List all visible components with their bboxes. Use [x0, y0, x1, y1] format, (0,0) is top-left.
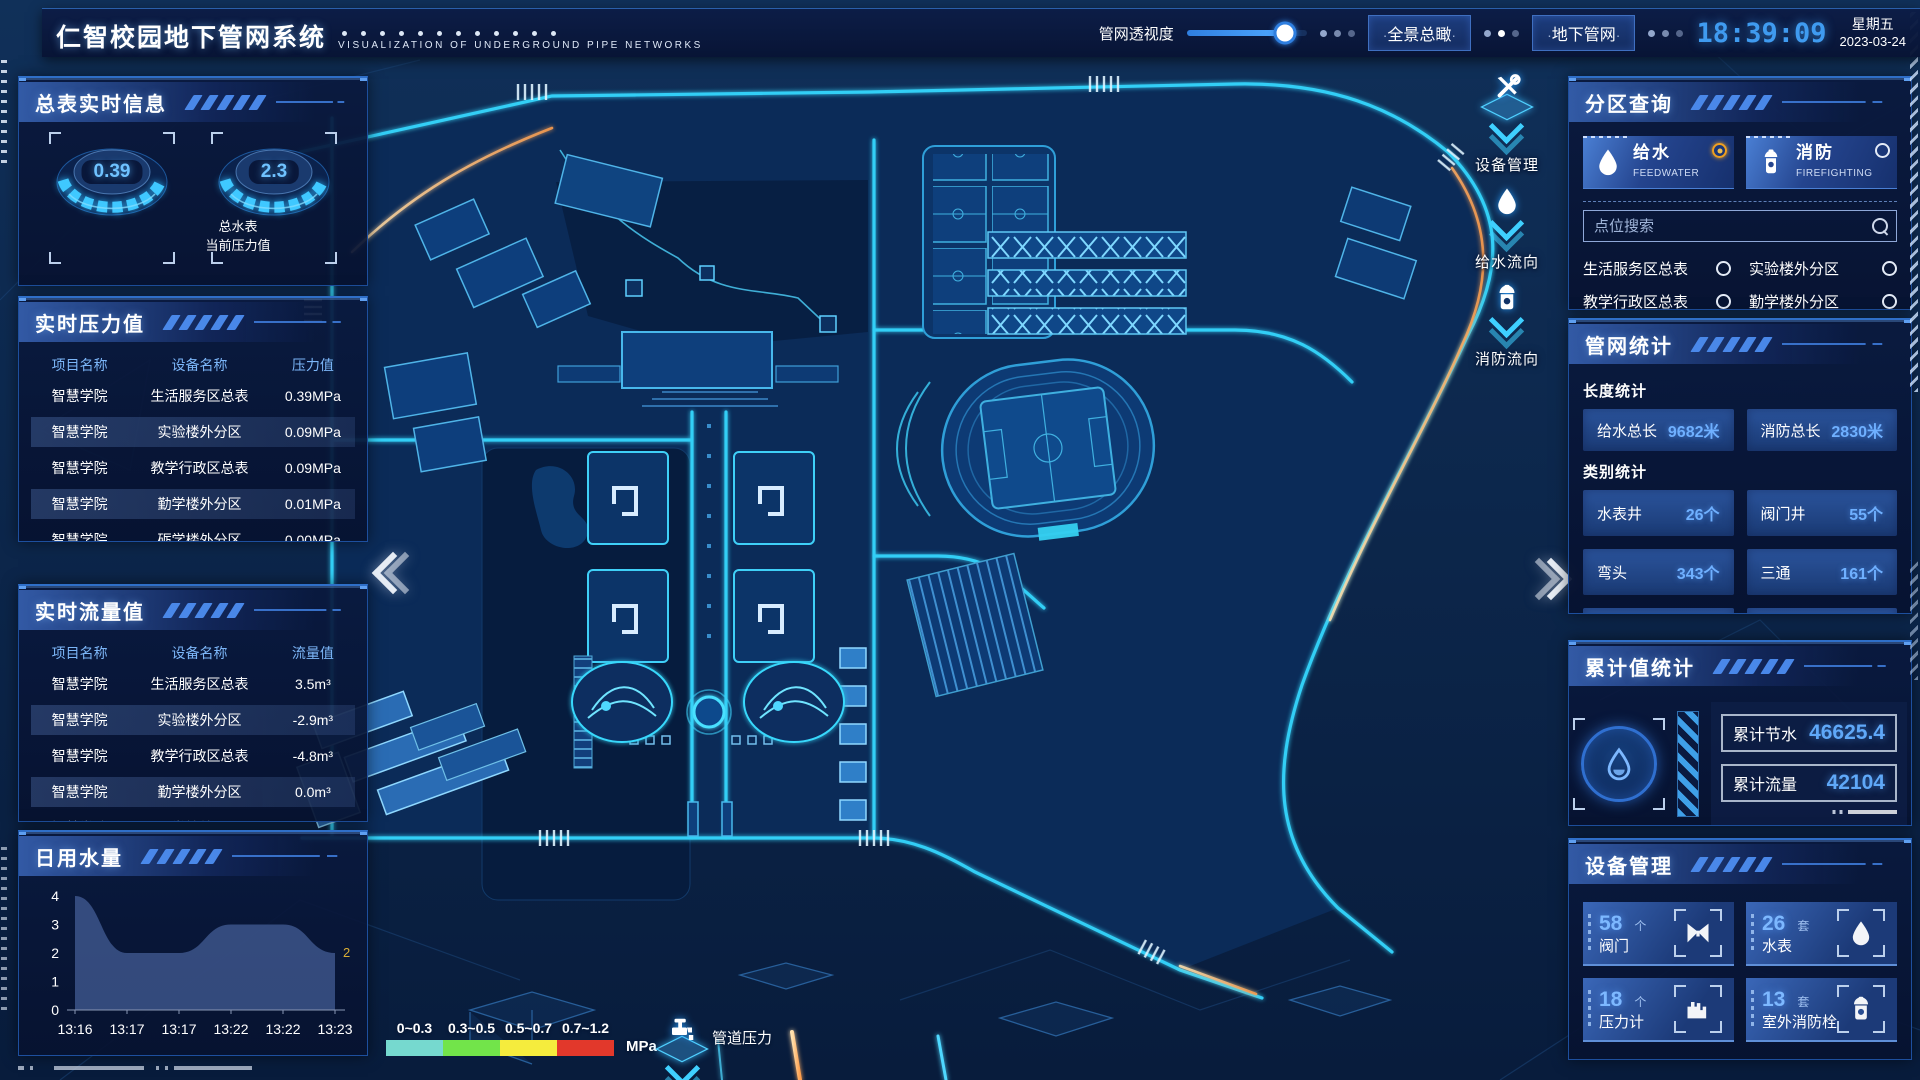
water-saving-icon-box: [1573, 718, 1665, 810]
panel-master-meter: 总表实时信息 0.39 总水表 当前压力值 2.3 总水表 瞬时流量: [18, 76, 368, 286]
stat-label: 水表井: [1597, 503, 1642, 524]
pipe-transparency-slider[interactable]: [1187, 30, 1307, 36]
stat-value: 9682米: [1668, 418, 1720, 442]
map-pan-left-arrow[interactable]: [376, 548, 416, 596]
svg-text:4: 4: [51, 888, 59, 904]
daily-water-area-chart: 0123413:1613:1713:1713:2213:2213:232: [31, 882, 357, 1050]
zone-item-label: 教学行政区总表: [1583, 291, 1688, 310]
device-card: 58个阀门: [1583, 902, 1734, 966]
panel-network-stats: 管网统计 长度统计 给水总长9682米消防总长2830米 类别统计 水表井26个…: [1568, 318, 1912, 614]
map-float-buttons: 设备管理 给水流向 消防流向: [1468, 66, 1546, 373]
hydrant-icon: [1756, 147, 1786, 177]
cumulative-values: 累计节水46625.4累计流量42104: [1711, 702, 1907, 826]
table-row: 智慧学院实验楼外分区0.09MPa: [31, 417, 355, 447]
table-header: 项目名称 设备名称 压力值: [31, 348, 355, 381]
stat-label: 消防总长: [1761, 420, 1821, 441]
device-unit: 个: [1634, 995, 1646, 1011]
pressure-legend: 0~0.30.3~0.50.5~0.70.7~1.2MPa: [386, 1020, 657, 1056]
legend-segment: 0.3~0.5: [443, 1020, 500, 1056]
water-drop-icon: [1485, 179, 1529, 223]
device-count: 26: [1762, 910, 1785, 937]
page-subtitle: VISUALIZATION OF UNDERGROUND PIPE NETWOR…: [338, 40, 703, 51]
slashes-decoration: [167, 315, 240, 330]
water-drop-icon: [1593, 147, 1623, 177]
stat-value: 26个: [1686, 501, 1720, 525]
right-edge-ticks-bottom: [1910, 560, 1918, 680]
stat-value: 55个: [1849, 501, 1883, 525]
slider-thumb[interactable]: [1274, 22, 1297, 45]
underground-pipes-button[interactable]: 地下管网: [1532, 15, 1635, 51]
device-unit: 个: [1634, 919, 1646, 935]
panel-device-management: 设备管理 58个阀门26套水表18个压力计13套室外消防栓: [1568, 838, 1912, 1060]
dots-decoration: [1648, 30, 1683, 37]
svg-text:2: 2: [343, 945, 350, 960]
map-pan-right-arrow[interactable]: [1528, 554, 1568, 602]
length-stats-grid: 给水总长9682米消防总长2830米: [1581, 409, 1899, 451]
point-search: [1583, 210, 1897, 242]
dots-decoration: [1320, 30, 1355, 37]
hatch-divider: [1677, 711, 1699, 817]
search-icon[interactable]: [1872, 218, 1888, 234]
feedwater-flow-map-button[interactable]: 给水流向: [1475, 179, 1539, 272]
right-edge-ticks: [1910, 12, 1918, 392]
panel-cumulative-stats: 累计值统计 累计节水46625.4累计流量42104: [1568, 640, 1912, 826]
stat-label: 弯头: [1597, 562, 1627, 583]
panel-title: 分区查询: [1569, 88, 1673, 117]
legend-range-label: 0.5~0.7: [505, 1020, 552, 1036]
zone-item-list: 生活服务区总表实验楼外分区教学行政区总表勤学楼外分区砺学楼外分区宿舍区泵房: [1581, 242, 1899, 310]
legend-range-label: 0.3~0.5: [448, 1020, 495, 1036]
stat-card: 三通161个: [1747, 549, 1898, 595]
slashes-decoration: [1695, 857, 1768, 872]
panel-title: 累计值统计: [1569, 652, 1695, 681]
zone-item-radio[interactable]: [1882, 261, 1897, 276]
stat-card: 消防总长2830米: [1747, 409, 1898, 451]
header-controls: 管网透视度 全景总瞰 地下管网 18:39:09 星期五 2023-03-24: [1099, 9, 1906, 57]
water-meter-icon: [1837, 909, 1885, 957]
pressure-gauge-icon: [1674, 985, 1722, 1033]
device-count: 18: [1599, 986, 1622, 1013]
gauge-master-pressure: 0.39 总水表 当前压力值: [49, 132, 175, 264]
panel-zone-query: 分区查询 给水 FEEDWATER 消防 FIREFIGHTING: [1568, 76, 1912, 310]
slashes-decoration: [1717, 659, 1790, 674]
svg-text:13:22: 13:22: [213, 1021, 248, 1037]
category-stats-label: 类别统计: [1581, 451, 1899, 490]
device-label: 室外消防栓: [1762, 1013, 1837, 1033]
panel-realtime-pressure: 实时压力值 项目名称 设备名称 压力值 智慧学院生活服务区总表0.39MPa智慧…: [18, 296, 368, 542]
svg-text:0: 0: [51, 1002, 59, 1018]
legend-unit: MPa: [626, 1038, 657, 1056]
table-row: 智慧学院砺学楼外分区0.00MPa: [31, 525, 355, 542]
panel-title: 日用水量: [19, 842, 123, 871]
pipe-pressure-label: 管道压力: [712, 1027, 772, 1048]
stat-label: 阀门井: [1761, 503, 1806, 524]
header-bar: 仁智校园地下管网系统 VISUALIZATION OF UNDERGROUND …: [42, 8, 1920, 57]
cumulative-label: 累计节水: [1733, 721, 1797, 745]
pipe-pressure-marker: [660, 1008, 704, 1080]
tab-radio-selected[interactable]: [1712, 143, 1727, 158]
device-card: 26套水表: [1746, 902, 1897, 966]
gauge-master-flow: 2.3 总水表 瞬时流量: [211, 132, 337, 264]
legend-segment: 0~0.3: [386, 1020, 443, 1056]
dots-decoration: [1484, 30, 1519, 37]
slashes-decoration: [189, 95, 262, 110]
cumulative-value: 46625.4: [1809, 721, 1885, 745]
device-label: 阀门: [1599, 937, 1646, 957]
hydrant-icon: [1837, 985, 1885, 1033]
date-label: 2023-03-24: [1840, 34, 1907, 50]
svg-text:13:17: 13:17: [161, 1021, 196, 1037]
flow-table: 智慧学院生活服务区总表3.5m³智慧学院实验楼外分区-2.9m³智慧学院教学行政…: [31, 669, 355, 822]
stat-card: 阀门井55个: [1747, 490, 1898, 536]
stat-card: 水表井26个: [1583, 490, 1734, 536]
stat-card-partial: [1747, 608, 1898, 614]
zone-item-label: 实验楼外分区: [1749, 258, 1839, 279]
pressure-table: 智慧学院生活服务区总表0.39MPa智慧学院实验楼外分区0.09MPa智慧学院教…: [31, 381, 355, 542]
digital-clock: 18:39:09: [1696, 18, 1826, 49]
panel-title: 管网统计: [1569, 330, 1673, 359]
tools-icon: [1485, 66, 1529, 110]
slashes-decoration: [1695, 95, 1768, 110]
search-input[interactable]: [1592, 217, 1872, 236]
legend-range-label: 0~0.3: [397, 1020, 432, 1036]
svg-text:13:22: 13:22: [265, 1021, 300, 1037]
app-title-group: 仁智校园地下管网系统 VISUALIZATION OF UNDERGROUND …: [56, 18, 703, 54]
category-stats-grid: 水表井26个阀门井55个弯头343个三通161个: [1581, 490, 1899, 614]
table-row: 智慧学院生活服务区总表3.5m³: [31, 669, 355, 699]
zone-item[interactable]: 生活服务区总表: [1583, 252, 1731, 285]
device-card: 18个压力计: [1583, 978, 1734, 1042]
tab-firefighting[interactable]: 消防 FIREFIGHTING: [1746, 136, 1897, 189]
legend-color-bar: [443, 1040, 500, 1056]
device-card: 13套室外消防栓: [1746, 978, 1897, 1042]
bottom-left-decoration: [18, 1066, 318, 1070]
device-count: 13: [1762, 986, 1785, 1013]
table-header: 项目名称 设备名称 流量值: [31, 636, 355, 669]
device-management-map-button[interactable]: 设备管理: [1475, 66, 1539, 175]
zone-item[interactable]: 勤学楼外分区: [1749, 285, 1897, 310]
panel-title: 实时流量值: [19, 596, 145, 625]
left-edge-ticks: [1, 58, 7, 163]
table-row: 智慧学院勤学楼外分区0.01MPa: [31, 489, 355, 519]
weekday-label: 星期五: [1852, 16, 1894, 34]
table-row: 智慧学院生活服务区总表0.39MPa: [31, 381, 355, 411]
legend-segment: 0.5~0.7: [500, 1020, 557, 1056]
device-count: 58: [1599, 910, 1622, 937]
left-edge-ticks-bottom: [1, 840, 7, 1010]
table-row: 智慧学院教学行政区总表0.09MPa: [31, 453, 355, 483]
tab-radio[interactable]: [1875, 143, 1890, 158]
tab-feedwater[interactable]: 给水 FEEDWATER: [1583, 136, 1734, 189]
cumulative-value: 42104: [1827, 771, 1885, 795]
zone-item-radio[interactable]: [1882, 294, 1897, 309]
stat-card: 给水总长9682米: [1583, 409, 1734, 451]
table-row: 智慧学院勤学楼外分区0.0m³: [31, 777, 355, 807]
stat-label: 给水总长: [1597, 420, 1657, 441]
table-row: 智慧学院实验楼外分区-2.9m³: [31, 705, 355, 735]
legend-color-bar: [386, 1040, 443, 1056]
stat-label: 三通: [1761, 562, 1791, 583]
zone-item-label: 勤学楼外分区: [1749, 291, 1839, 310]
stat-value: 343个: [1677, 560, 1720, 584]
svg-text:1: 1: [51, 974, 59, 990]
zone-tabs: 给水 FEEDWATER 消防 FIREFIGHTING: [1581, 128, 1899, 191]
stat-value: 2830米: [1831, 418, 1883, 442]
cumulative-label: 累计流量: [1733, 771, 1797, 795]
legend-segment: 0.7~1.2: [557, 1020, 614, 1056]
cumulative-value-box: 累计节水46625.4: [1721, 714, 1897, 752]
svg-text:13:16: 13:16: [57, 1021, 92, 1037]
device-unit: 套: [1797, 919, 1809, 935]
panel-daily-water: 日用水量 0123413:1613:1713:1713:2213:2213:23…: [18, 830, 368, 1056]
hydrant-icon: [1485, 276, 1529, 320]
dashboard: 仁智校园地下管网系统 VISUALIZATION OF UNDERGROUND …: [0, 0, 1920, 1080]
table-row: 智慧学院教学行政区总表-4.8m³: [31, 741, 355, 771]
pipe-pressure-legend: 管道压力: [660, 1008, 772, 1080]
legend-color-bar: [500, 1040, 557, 1056]
valve-icon: [1674, 909, 1722, 957]
title-dots-decoration: [338, 31, 703, 36]
gauge-value: 2.3: [249, 160, 299, 184]
table-row: 智慧学院砺学楼外分区2.2m³: [31, 813, 355, 822]
zone-item-radio[interactable]: [1716, 294, 1731, 309]
slashes-decoration: [167, 603, 240, 618]
panel-title: 总表实时信息: [19, 88, 167, 117]
gauge-value: 0.39: [82, 160, 143, 184]
fire-flow-map-button[interactable]: 消防流向: [1475, 276, 1539, 369]
length-stats-label: 长度统计: [1581, 370, 1899, 409]
device-label: 压力计: [1599, 1013, 1646, 1033]
cumulative-value-box: 累计流量42104: [1721, 764, 1897, 802]
water-drop-icon: [1581, 726, 1657, 802]
legend-range-label: 0.7~1.2: [562, 1020, 609, 1036]
svg-text:13:17: 13:17: [109, 1021, 144, 1037]
stat-card: 弯头343个: [1583, 549, 1734, 595]
device-label: 水表: [1762, 937, 1809, 957]
legend-color-bar: [557, 1040, 614, 1056]
device-unit: 套: [1797, 995, 1809, 1011]
svg-text:3: 3: [51, 917, 59, 933]
panel-title: 设备管理: [1569, 850, 1673, 879]
slashes-decoration: [1695, 337, 1768, 352]
device-card-grid: 58个阀门26套水表18个压力计13套室外消防栓: [1581, 890, 1899, 1042]
panel-realtime-flow: 实时流量值 项目名称 设备名称 流量值 智慧学院生活服务区总表3.5m³智慧学院…: [18, 584, 368, 822]
svg-text:2: 2: [51, 945, 59, 961]
slashes-decoration: [145, 849, 218, 864]
panel-title: 实时压力值: [19, 308, 145, 337]
stat-value: 161个: [1840, 560, 1883, 584]
slider-fill: [1187, 30, 1285, 36]
zone-item-label: 生活服务区总表: [1583, 258, 1688, 279]
page-title: 仁智校园地下管网系统: [56, 18, 326, 54]
zone-item-radio[interactable]: [1716, 261, 1731, 276]
zone-item[interactable]: 实验楼外分区: [1749, 252, 1897, 285]
faucet-icon: [660, 1008, 704, 1052]
stat-card-partial: [1583, 608, 1734, 614]
zone-item[interactable]: 教学行政区总表: [1583, 285, 1731, 310]
svg-text:13:23: 13:23: [317, 1021, 352, 1037]
overview-button[interactable]: 全景总瞰: [1368, 15, 1471, 51]
transparency-label: 管网透视度: [1099, 23, 1174, 44]
dashed-divider: [1583, 201, 1897, 202]
dash-decoration: [1827, 810, 1897, 814]
